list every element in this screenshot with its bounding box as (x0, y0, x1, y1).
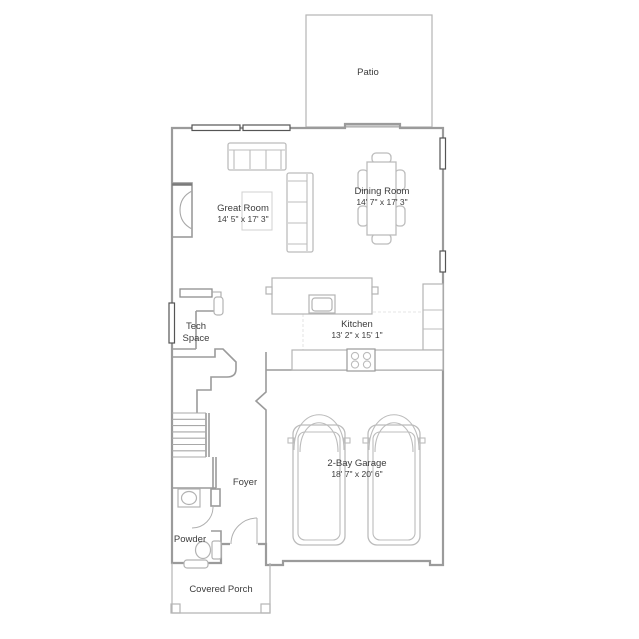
great-room-furniture (172, 143, 313, 252)
powder-door-arc (192, 507, 213, 528)
room-label-tech-space-2: Space (183, 333, 210, 344)
room-label-great-room: Great Room (217, 203, 269, 214)
window-icon (440, 251, 446, 272)
powder-wall-stub (211, 489, 220, 506)
powder-sink (178, 489, 200, 507)
room-label-tech-space-1: Tech (186, 321, 206, 332)
car (288, 415, 350, 545)
cooktop (347, 349, 375, 371)
desk (180, 289, 212, 297)
floor-plan-drawing: Patio Great Room 14' 5" x 17' 3" Dining … (0, 0, 639, 639)
front-door-arc (231, 518, 257, 544)
window-icon (169, 303, 175, 343)
sofa (228, 143, 286, 170)
room-label-foyer: Foyer (233, 477, 257, 488)
powder-vanity (184, 560, 208, 568)
room-label-powder: Powder (174, 534, 206, 545)
kitchen-island (266, 278, 378, 314)
room-dims-garage: 18' 7" x 20' 6" (331, 469, 382, 479)
room-label-dining-room: Dining Room (355, 186, 410, 197)
room-label-covered-porch: Covered Porch (189, 584, 252, 595)
room-label-kitchen: Kitchen (341, 319, 373, 330)
floor-plan-page: Patio Great Room 14' 5" x 17' 3" Dining … (0, 0, 639, 639)
porch-post (261, 604, 270, 613)
room-dims-dining-room: 14' 7" x 17' 3" (356, 197, 407, 207)
stairs (172, 413, 206, 457)
sectional-sofa (287, 173, 313, 252)
room-label-patio: Patio (357, 67, 379, 78)
window-icon (192, 125, 240, 131)
room-label-garage: 2-Bay Garage (327, 458, 386, 469)
window-icon (243, 125, 290, 131)
car (363, 415, 425, 545)
fireplace (172, 183, 192, 237)
front-door (231, 518, 257, 544)
room-dims-kitchen: 13' 2" x 15' 1" (331, 330, 382, 340)
powder-fixtures (178, 489, 221, 568)
foyer-right-wall (256, 352, 266, 544)
garage-contents (288, 415, 425, 545)
desk-chair (214, 297, 223, 315)
room-dims-great-room: 14' 5" x 17' 3" (217, 214, 268, 224)
window-icon (440, 138, 446, 169)
hall-angled-wall (172, 349, 236, 413)
counter-right (423, 284, 443, 350)
